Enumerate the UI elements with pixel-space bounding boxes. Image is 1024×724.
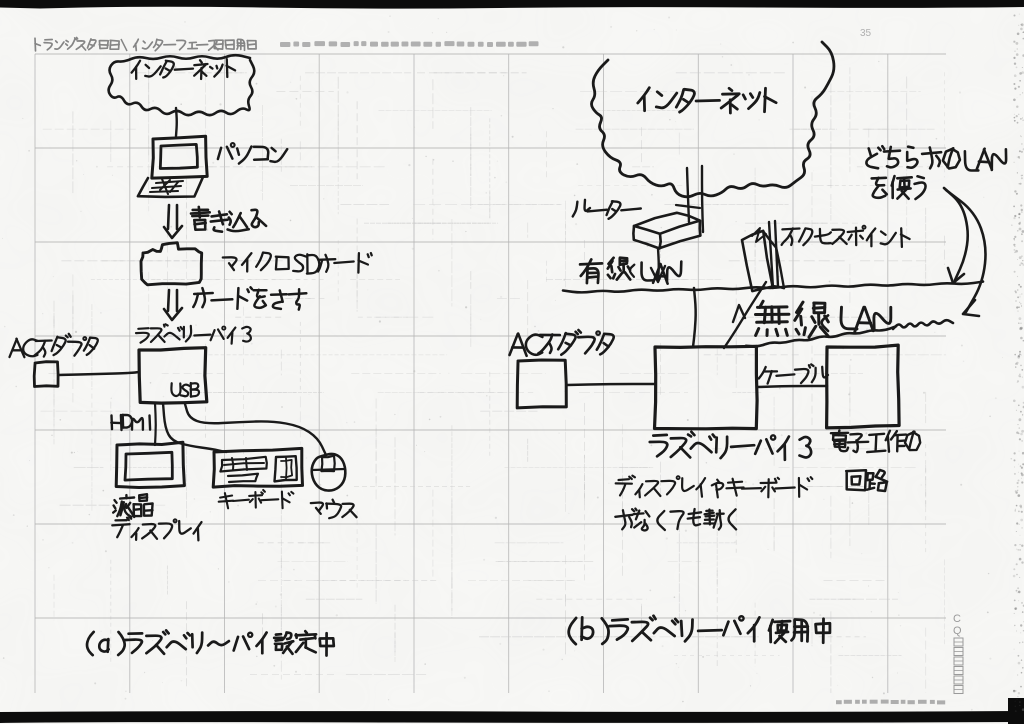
svg-text:Q: Q [953,625,962,637]
svg-text:35: 35 [860,28,872,39]
svg-text:C: C [953,613,961,625]
